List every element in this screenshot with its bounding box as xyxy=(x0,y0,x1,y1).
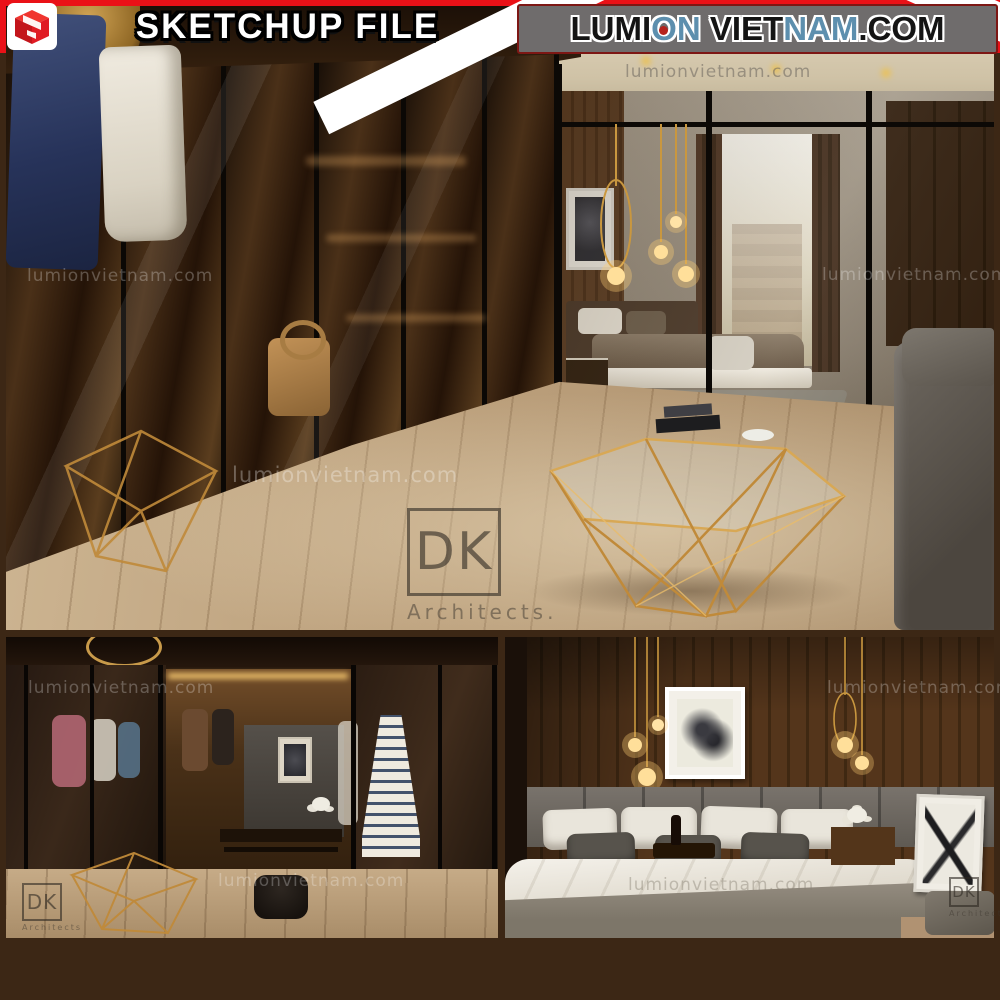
art-canvas xyxy=(923,803,976,885)
bottom-banner: SKETCHUP FILE LUMION VIETNAM.COM xyxy=(0,0,1000,53)
dk-architects-watermark-small: DK Architects xyxy=(949,877,1000,918)
pink-garment xyxy=(52,715,86,787)
shelf-light xyxy=(306,156,466,166)
lumion-vietnam-box: LUMION VIETNAM.COM xyxy=(517,4,998,53)
white-flowers xyxy=(847,807,867,823)
dressing-desk xyxy=(220,829,342,842)
wine-bottle xyxy=(671,815,681,845)
hanging-coat xyxy=(182,709,208,771)
render-bedroom xyxy=(505,637,994,938)
white-flowers xyxy=(312,797,330,811)
dk-architects-watermark-small: DK Architects xyxy=(22,883,82,932)
dk-logo-square: DK xyxy=(22,883,62,921)
pendant-lights xyxy=(586,124,716,334)
sketchup-logo-badge xyxy=(7,3,57,50)
dk-architects-label: Architects xyxy=(949,909,1000,918)
nook-art-frame xyxy=(278,737,312,783)
blue-garment xyxy=(118,722,140,778)
dk-architects-label: Architects xyxy=(22,923,82,932)
dk-architects-watermark: DK Architects. xyxy=(407,508,557,624)
pouf-ottoman xyxy=(254,875,308,919)
dk-logo-square: DK xyxy=(407,508,501,596)
handbag xyxy=(268,338,330,416)
shelf-light xyxy=(346,314,486,322)
site-part: VIET xyxy=(701,10,784,47)
site-part: N xyxy=(677,10,701,47)
dk-logo-square: DK xyxy=(949,877,979,907)
site-part: NAM xyxy=(783,10,858,47)
white-sweater xyxy=(99,45,188,243)
art-canvas xyxy=(284,744,306,776)
dk-architects-label: Architects. xyxy=(407,600,557,624)
site-part: .COM xyxy=(858,10,944,47)
gold-wire-table xyxy=(56,426,226,576)
closet-led-strip xyxy=(168,673,348,679)
hanging-coat xyxy=(212,709,234,765)
side-table xyxy=(831,827,895,865)
sketchup-cube-icon xyxy=(13,8,51,46)
sofa-cushion xyxy=(902,328,994,386)
gold-wire-side-table xyxy=(64,849,204,937)
sketchup-file-label: SKETCHUP FILE xyxy=(136,7,439,47)
lumion-vietnam-label: LUMION VIETNAM.COM xyxy=(570,10,944,48)
site-part-o: O xyxy=(651,10,677,48)
bed-tray xyxy=(653,843,715,858)
shelf-light xyxy=(326,234,476,242)
site-part: LUMI xyxy=(570,10,651,47)
